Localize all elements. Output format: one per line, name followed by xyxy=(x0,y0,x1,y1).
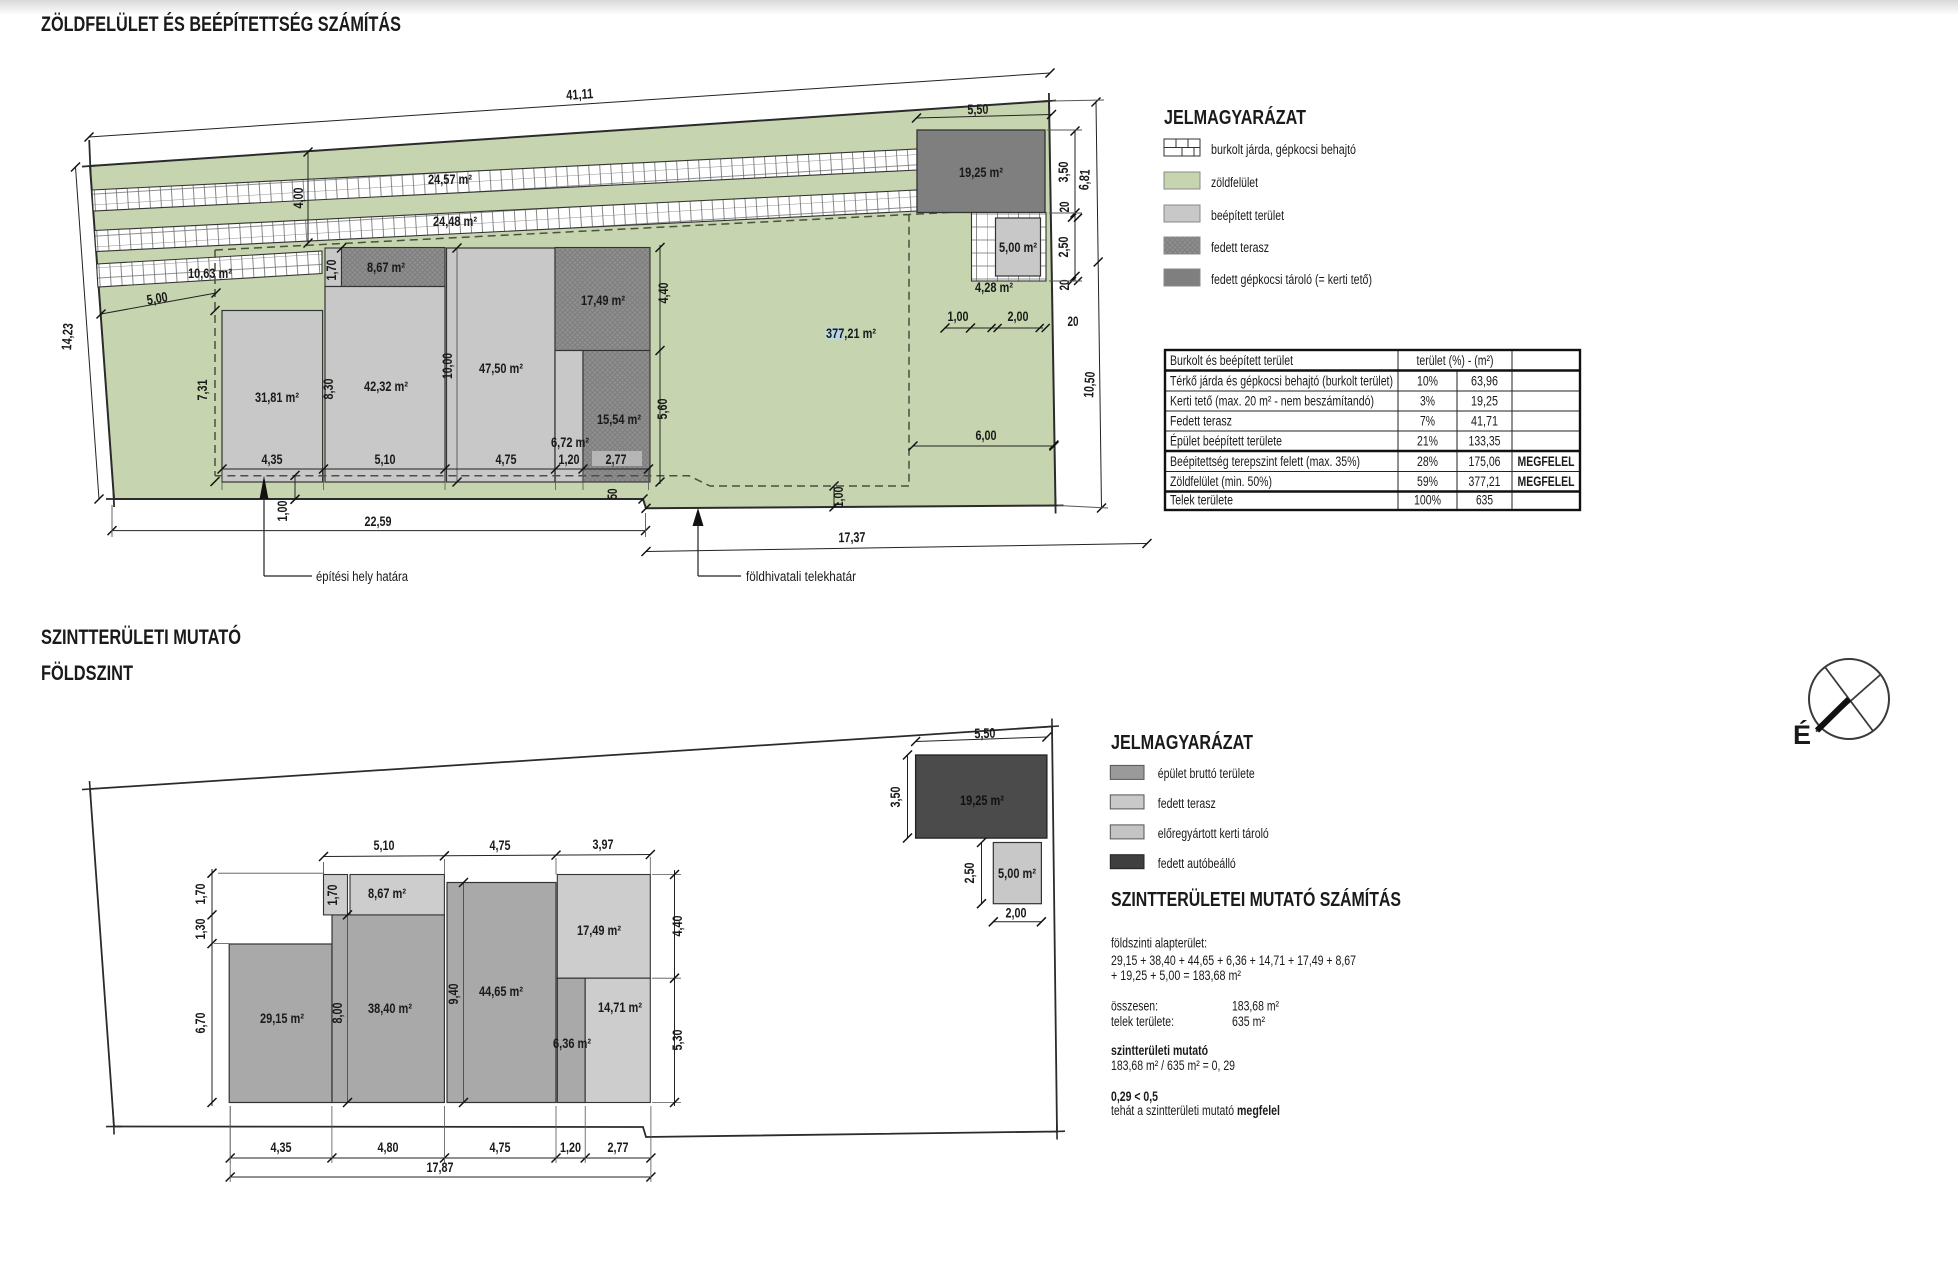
svg-text:7%: 7% xyxy=(1420,414,1435,429)
svg-text:fedett gépkocsi tároló (= kert: fedett gépkocsi tároló (= kerti tető) xyxy=(1211,272,1372,287)
svg-text:Burkolt és beépített terület: Burkolt és beépített terület xyxy=(1170,353,1293,368)
svg-text:Kerti tető (max. 20 m² - nem b: Kerti tető (max. 20 m² - nem beszámítand… xyxy=(1170,394,1374,409)
svg-text:Zöldfelület (min. 50%): Zöldfelület (min. 50%) xyxy=(1170,474,1272,489)
svg-text:8,30: 8,30 xyxy=(320,378,336,399)
svg-text:100%: 100% xyxy=(1414,493,1441,508)
svg-text:133,35: 133,35 xyxy=(1469,434,1501,449)
svg-text:6,72 m²: 6,72 m² xyxy=(551,434,589,450)
svg-text:2,77: 2,77 xyxy=(606,451,627,467)
svg-text:Épület beépített területe: Épület beépített területe xyxy=(1170,434,1282,449)
svg-text:3,97: 3,97 xyxy=(593,836,614,852)
svg-text:épület bruttó területe: épület bruttó területe xyxy=(1158,766,1255,781)
svg-text:4,75: 4,75 xyxy=(496,451,517,467)
svg-text:SZINTTERÜLETI MUTATÓ: SZINTTERÜLETI MUTATÓ xyxy=(41,625,241,649)
svg-text:5,50: 5,50 xyxy=(974,725,996,742)
svg-text:4,35: 4,35 xyxy=(262,451,283,467)
svg-text:1,30: 1,30 xyxy=(192,918,208,939)
svg-text:7,31: 7,31 xyxy=(194,379,210,400)
svg-text:telek területe:: telek területe: xyxy=(1111,1014,1174,1029)
svg-text:Telek területe: Telek területe xyxy=(1170,493,1233,508)
svg-text:2,00: 2,00 xyxy=(1006,905,1027,921)
svg-text:Fedett terasz: Fedett terasz xyxy=(1170,414,1232,429)
svg-text:5,60: 5,60 xyxy=(654,398,670,419)
svg-text:17,37: 17,37 xyxy=(838,529,865,545)
svg-text:tehát a szintterületi mutató m: tehát a szintterületi mutató megfelel xyxy=(1111,1103,1280,1118)
svg-text:6,36 m²: 6,36 m² xyxy=(553,1035,591,1051)
svg-text:20: 20 xyxy=(1068,313,1079,329)
svg-text:175,06: 175,06 xyxy=(1469,454,1501,469)
svg-text:8,00: 8,00 xyxy=(329,1002,345,1023)
svg-text:59%: 59% xyxy=(1417,474,1438,489)
svg-text:5,30: 5,30 xyxy=(669,1029,685,1050)
svg-text:5,00 m²: 5,00 m² xyxy=(999,239,1037,255)
svg-text:Beépitettség terepszint felett: Beépitettség terepszint felett (max. 35%… xyxy=(1170,454,1360,469)
svg-text:1,00: 1,00 xyxy=(830,486,846,507)
svg-text:5,50: 5,50 xyxy=(967,101,989,118)
svg-text:burkolt járda, gépkocsi behajt: burkolt járda, gépkocsi behajtó xyxy=(1211,142,1356,157)
svg-text:6,70: 6,70 xyxy=(192,1012,208,1033)
svg-text:4,80: 4,80 xyxy=(378,1139,399,1155)
svg-text:5,10: 5,10 xyxy=(374,837,395,853)
svg-text:építési hely határa: építési hely határa xyxy=(316,569,408,584)
svg-text:1,70: 1,70 xyxy=(192,883,208,904)
svg-text:14,71 m²: 14,71 m² xyxy=(598,999,642,1015)
svg-text:földszinti alapterület:: földszinti alapterület: xyxy=(1111,936,1207,951)
svg-text:28%: 28% xyxy=(1417,454,1438,469)
svg-text:24,57 m²: 24,57 m² xyxy=(428,171,472,187)
svg-text:1,20: 1,20 xyxy=(560,1139,581,1155)
svg-text:31,81 m²: 31,81 m² xyxy=(255,389,299,405)
svg-text:1,00: 1,00 xyxy=(274,500,290,521)
svg-text:17,87: 17,87 xyxy=(427,1159,454,1175)
svg-text:10%: 10% xyxy=(1417,374,1438,389)
svg-text:183,68 m² / 635 m² = 0, 29: 183,68 m² / 635 m² = 0, 29 xyxy=(1111,1058,1235,1073)
svg-text:10,63 m²: 10,63 m² xyxy=(188,265,232,281)
svg-text:38,40 m²: 38,40 m² xyxy=(368,1000,412,1016)
svg-text:19,25: 19,25 xyxy=(1471,394,1498,409)
svg-text:5,10: 5,10 xyxy=(375,451,396,467)
svg-text:4,40: 4,40 xyxy=(655,282,671,303)
svg-text:10,50: 10,50 xyxy=(1080,371,1098,398)
svg-text:377,21 m²: 377,21 m² xyxy=(826,325,876,341)
svg-text:4,75: 4,75 xyxy=(490,1139,511,1155)
svg-text:szintterületi mutató: szintterületi mutató xyxy=(1111,1043,1208,1058)
svg-text:összesen:: összesen: xyxy=(1111,999,1158,1014)
svg-text:5,00 m²: 5,00 m² xyxy=(998,865,1036,881)
svg-text:JELMAGYARÁZAT: JELMAGYARÁZAT xyxy=(1164,106,1306,129)
svg-text:41,71: 41,71 xyxy=(1471,414,1498,429)
svg-text:4,35: 4,35 xyxy=(271,1139,292,1155)
svg-text:ZÖLDFELÜLET ÉS BEÉPÍTETTSÉG SZ: ZÖLDFELÜLET ÉS BEÉPÍTETTSÉG SZÁMÍTÁS xyxy=(41,13,401,36)
svg-text:földhivatali telekhatár: földhivatali telekhatár xyxy=(746,569,856,584)
svg-text:4,28 m²: 4,28 m² xyxy=(975,279,1013,295)
svg-text:10,00: 10,00 xyxy=(439,353,455,379)
svg-text:1,20: 1,20 xyxy=(559,451,580,467)
svg-text:22,59: 22,59 xyxy=(365,513,392,529)
svg-text:JELMAGYARÁZAT: JELMAGYARÁZAT xyxy=(1111,731,1253,754)
svg-text:47,50 m²: 47,50 m² xyxy=(479,360,523,376)
svg-text:MEGFELEL: MEGFELEL xyxy=(1518,454,1575,469)
svg-text:3%: 3% xyxy=(1420,394,1435,409)
svg-text:20: 20 xyxy=(1056,201,1072,212)
svg-text:19,25 m²: 19,25 m² xyxy=(960,792,1004,808)
svg-text:19,25 m²: 19,25 m² xyxy=(959,164,1003,180)
svg-text:41,11: 41,11 xyxy=(566,85,594,103)
svg-text:6,00: 6,00 xyxy=(976,427,997,443)
svg-text:183,68 m²: 183,68 m² xyxy=(1232,999,1279,1014)
svg-text:15,54 m²: 15,54 m² xyxy=(597,411,641,427)
svg-text:8,67 m²: 8,67 m² xyxy=(367,259,405,275)
svg-text:fedett terasz: fedett terasz xyxy=(1211,240,1269,255)
svg-text:MEGFELEL: MEGFELEL xyxy=(1518,474,1575,489)
svg-text:8,67 m²: 8,67 m² xyxy=(368,885,406,901)
svg-text:21%: 21% xyxy=(1417,434,1438,449)
svg-text:17,49 m²: 17,49 m² xyxy=(581,292,625,308)
svg-text:4,75: 4,75 xyxy=(490,837,511,853)
svg-text:3,50: 3,50 xyxy=(887,786,903,807)
svg-text:0,29 < 0,5: 0,29 < 0,5 xyxy=(1111,1089,1158,1104)
svg-text:3,50: 3,50 xyxy=(1055,161,1071,182)
svg-text:29,15 + 38,40 + 44,65 + 6,36 +: 29,15 + 38,40 + 44,65 + 6,36 + 14,71 + 1… xyxy=(1111,953,1356,968)
svg-text:14,23: 14,23 xyxy=(58,322,76,350)
svg-text:50: 50 xyxy=(604,488,620,499)
svg-text:4,40: 4,40 xyxy=(669,915,685,936)
svg-text:FÖLDSZINT: FÖLDSZINT xyxy=(41,662,133,685)
svg-text:É: É xyxy=(1793,719,1811,750)
svg-text:beépített terület: beépített terület xyxy=(1211,208,1284,223)
svg-text:2,50: 2,50 xyxy=(961,862,977,883)
svg-text:fedett terasz: fedett terasz xyxy=(1158,796,1216,811)
svg-text:terület (%) - (m²): terület (%) - (m²) xyxy=(1417,353,1494,368)
svg-text:SZINTTERÜLETEI MUTATÓ SZÁMÍTÁS: SZINTTERÜLETEI MUTATÓ SZÁMÍTÁS xyxy=(1111,887,1401,911)
svg-text:1,00: 1,00 xyxy=(948,308,969,324)
svg-text:előregyártott kerti tároló: előregyártott kerti tároló xyxy=(1158,826,1269,841)
svg-text:44,65 m²: 44,65 m² xyxy=(479,983,523,999)
svg-text:377,21: 377,21 xyxy=(1469,474,1501,489)
svg-text:fedett autóbeálló: fedett autóbeálló xyxy=(1158,856,1236,871)
svg-text:+ 19,25 + 5,00 = 183,68 m²: + 19,25 + 5,00 = 183,68 m² xyxy=(1111,968,1241,983)
svg-text:Térkő járda és gépkocsi behajt: Térkő járda és gépkocsi behajtó (burkolt… xyxy=(1170,374,1393,389)
svg-text:635: 635 xyxy=(1476,493,1493,508)
svg-text:2,00: 2,00 xyxy=(1008,308,1029,324)
svg-text:2,50: 2,50 xyxy=(1055,236,1071,257)
svg-text:4,00: 4,00 xyxy=(290,187,306,208)
svg-text:17,49 m²: 17,49 m² xyxy=(577,922,621,938)
svg-text:24,48 m²: 24,48 m² xyxy=(433,213,477,229)
svg-text:29,15 m²: 29,15 m² xyxy=(260,1010,304,1026)
svg-text:6,81: 6,81 xyxy=(1075,168,1092,190)
svg-text:1,70: 1,70 xyxy=(323,259,339,280)
svg-text:1,70: 1,70 xyxy=(324,884,340,905)
svg-text:2,77: 2,77 xyxy=(608,1139,629,1155)
svg-text:63,96: 63,96 xyxy=(1471,374,1498,389)
svg-text:9,40: 9,40 xyxy=(445,983,461,1004)
svg-text:635 m²: 635 m² xyxy=(1232,1014,1265,1029)
svg-text:zöldfelület: zöldfelület xyxy=(1211,175,1258,190)
svg-text:42,32 m²: 42,32 m² xyxy=(364,378,408,394)
